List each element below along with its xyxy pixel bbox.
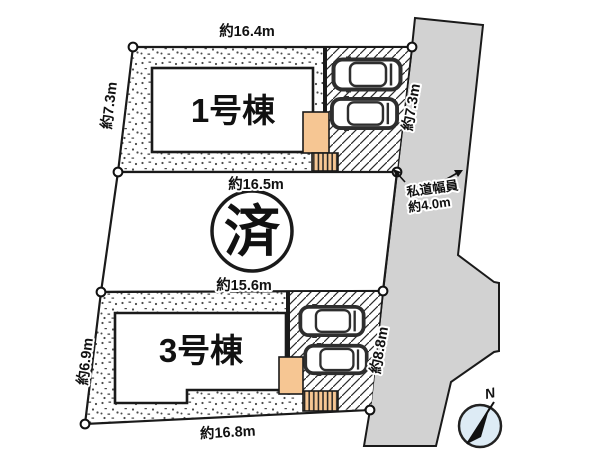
compass-icon: N bbox=[459, 384, 501, 447]
dim-label-lot3-bottom: 約16.8m bbox=[199, 422, 255, 443]
car-icon bbox=[305, 343, 366, 376]
sold-stamp-text: 済 bbox=[224, 200, 281, 263]
lot3-stairs-icon bbox=[303, 391, 338, 411]
dim-label-lot2-bottom: 約15.6m bbox=[216, 276, 272, 294]
site-plan-drawing: 1号棟 済 3号棟 約16.4m 約7.3m 約16.5m 約15.6m 約6.… bbox=[0, 0, 600, 474]
site-plan-page: 1号棟 済 3号棟 約16.4m 約7.3m 約16.5m 約15.6m 約6.… bbox=[0, 0, 600, 474]
car-icon bbox=[334, 57, 401, 93]
vertex-marker bbox=[408, 43, 417, 52]
car-icon bbox=[300, 304, 363, 338]
vertex-marker bbox=[366, 406, 375, 415]
lot1: 1号棟 bbox=[118, 47, 412, 172]
dim-label-lot2-top: 約16.5m bbox=[228, 175, 284, 193]
vertex-marker bbox=[97, 288, 106, 297]
lot3-building-label: 3号棟 bbox=[159, 332, 244, 369]
lot3-porch bbox=[279, 357, 303, 394]
lot1-porch bbox=[303, 112, 329, 153]
dim-label-lot1-left: 約7.3m bbox=[97, 81, 121, 130]
dim-label-lot1-top: 約16.4m bbox=[219, 22, 275, 40]
vertex-marker bbox=[129, 43, 138, 52]
lot1-stairs-icon bbox=[312, 153, 338, 171]
vertex-marker bbox=[379, 287, 388, 296]
vertex-marker bbox=[114, 168, 123, 177]
car-icon bbox=[332, 96, 397, 131]
lot3: 3号棟 bbox=[85, 291, 383, 424]
vertex-marker bbox=[81, 420, 90, 429]
lot1-building-label: 1号棟 bbox=[191, 92, 276, 129]
north-label: N bbox=[483, 384, 497, 402]
